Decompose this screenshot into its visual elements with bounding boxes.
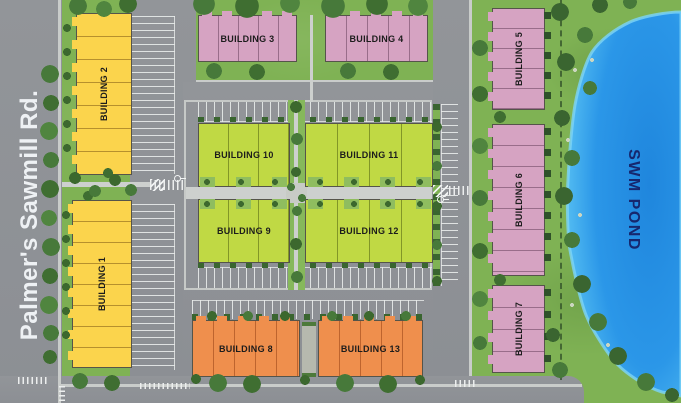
site-plan: BUILDING 2 BUILDING 1 BUILDING 3 BUILDIN…	[0, 0, 681, 403]
courtyards-north	[200, 177, 432, 187]
building-1-label: BUILDING 1	[97, 257, 107, 311]
parking-stalls-west-lower	[132, 204, 175, 370]
road-south	[0, 376, 584, 403]
building-11-label: BUILDING 11	[340, 150, 399, 160]
building-6[interactable]: BUILDING 6	[492, 124, 545, 276]
building-4-label: BUILDING 4	[349, 34, 403, 44]
hedge-center-south	[198, 263, 432, 268]
building-10-label: BUILDING 10	[214, 150, 273, 160]
building-2-label: BUILDING 2	[99, 67, 109, 121]
crosswalk-east-center	[449, 186, 470, 195]
building-3[interactable]: BUILDING 3	[198, 15, 297, 62]
building-2[interactable]: BUILDING 2	[76, 13, 132, 175]
building-7-label: BUILDING 7	[514, 302, 524, 356]
swm-pond-label: SWM POND	[624, 149, 642, 251]
crosswalk-south-west	[140, 383, 190, 389]
crosswalk-southwest-corner	[18, 377, 48, 384]
sidewalk-west	[58, 0, 61, 403]
hedge-center-north	[198, 117, 432, 122]
walkway-between-buildings-1-2	[62, 182, 150, 187]
courtyards-south	[200, 199, 432, 209]
building-4[interactable]: BUILDING 4	[325, 15, 428, 62]
building-6-label: BUILDING 6	[514, 173, 524, 227]
building-5[interactable]: BUILDING 5	[492, 8, 545, 110]
building-8[interactable]: BUILDING 8	[192, 320, 300, 377]
road-name-label: Palmer's Sawmill Rd.	[16, 90, 44, 340]
building-9-label: BUILDING 9	[217, 226, 271, 236]
building-5-label: BUILDING 5	[514, 32, 524, 86]
sidewalk-south	[58, 384, 582, 387]
walkway-between-buildings-8-13	[302, 322, 316, 377]
building-7[interactable]: BUILDING 7	[492, 285, 545, 373]
building-13[interactable]: BUILDING 13	[318, 320, 423, 377]
walkway-between-buildings-3-4	[310, 15, 313, 102]
road-name-label-wrap: Palmer's Sawmill Rd.	[18, 95, 42, 335]
property-boundary-line	[560, 0, 562, 380]
sign-marker-west	[174, 175, 181, 182]
sign-marker-east	[437, 196, 444, 203]
pond-label-wrap: SWM POND	[598, 155, 668, 245]
parking-stalls-west-upper	[132, 16, 175, 174]
sidewalk-north	[196, 80, 433, 82]
building-13-label: BUILDING 13	[341, 344, 400, 354]
building-8-label: BUILDING 8	[219, 344, 273, 354]
central-walkway-horizontal	[186, 187, 432, 199]
crosswalk-west-hatch	[150, 179, 165, 191]
building-12-label: BUILDING 12	[339, 226, 398, 236]
building-1[interactable]: BUILDING 1	[72, 200, 132, 368]
parking-stalls-center-south	[198, 267, 432, 288]
crosswalk-south-entry	[59, 386, 65, 403]
crosswalk-south-east	[455, 380, 477, 387]
building-3-label: BUILDING 3	[220, 34, 274, 44]
